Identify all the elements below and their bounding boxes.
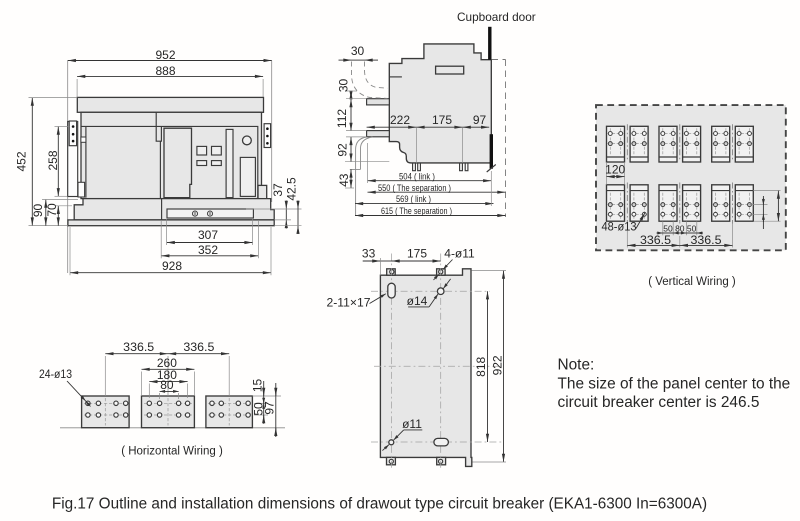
svg-text:307: 307 xyxy=(198,228,218,242)
svg-text:15: 15 xyxy=(251,379,265,393)
svg-text:80: 80 xyxy=(675,224,685,234)
svg-text:ø11: ø11 xyxy=(402,417,422,431)
svg-text:( Vertical Wiring ): ( Vertical Wiring ) xyxy=(648,276,736,288)
svg-text:452: 452 xyxy=(15,151,29,171)
svg-text:92: 92 xyxy=(336,143,350,157)
svg-text:42.5: 42.5 xyxy=(285,177,299,201)
svg-text:97: 97 xyxy=(473,113,487,127)
svg-text:352: 352 xyxy=(198,243,218,257)
svg-text:Note:: Note: xyxy=(558,357,595,374)
svg-text:97: 97 xyxy=(263,401,277,415)
svg-text:ø14: ø14 xyxy=(407,294,428,308)
svg-text:336.5: 336.5 xyxy=(640,233,671,247)
svg-text:504 ( link ): 504 ( link ) xyxy=(399,171,435,182)
svg-text:48-ø13: 48-ø13 xyxy=(602,220,637,234)
svg-text:33: 33 xyxy=(362,247,376,261)
svg-text:2-11×17: 2-11×17 xyxy=(327,296,371,310)
svg-text:90: 90 xyxy=(31,204,45,218)
svg-text:circuit breaker center is 246.: circuit breaker center is 246.5 xyxy=(558,394,760,411)
svg-text:80: 80 xyxy=(160,378,174,392)
svg-text:928: 928 xyxy=(162,259,182,273)
svg-text:112: 112 xyxy=(335,109,349,128)
svg-text:818: 818 xyxy=(474,356,488,376)
svg-text:37: 37 xyxy=(271,183,285,197)
svg-text:70: 70 xyxy=(45,203,59,217)
svg-text:550 ( The separation ): 550 ( The separation ) xyxy=(378,183,451,194)
svg-text:120: 120 xyxy=(605,162,625,176)
svg-text:Cupboard door: Cupboard door xyxy=(457,10,536,24)
svg-text:30: 30 xyxy=(351,44,365,58)
svg-text:615 ( The separation ): 615 ( The separation ) xyxy=(381,206,452,217)
svg-text:569 ( link ): 569 ( link ) xyxy=(396,194,431,205)
svg-text:336.5: 336.5 xyxy=(691,233,722,247)
svg-text:4-ø11: 4-ø11 xyxy=(444,247,475,261)
svg-text:( Horizontal Wiring ): ( Horizontal Wiring ) xyxy=(121,446,223,458)
svg-text:888: 888 xyxy=(155,64,175,78)
svg-text:922: 922 xyxy=(491,355,505,375)
svg-text:952: 952 xyxy=(155,48,175,62)
svg-text:222: 222 xyxy=(390,113,410,127)
svg-text:336.5: 336.5 xyxy=(123,340,154,354)
svg-text:175: 175 xyxy=(407,247,427,261)
svg-text:30: 30 xyxy=(337,79,351,93)
svg-text:175: 175 xyxy=(432,113,452,127)
svg-text:Fig.17 Outline and installatio: Fig.17 Outline and installation dimensio… xyxy=(52,496,707,513)
svg-text:43: 43 xyxy=(337,173,351,187)
svg-text:The size of the panel center t: The size of the panel center to the xyxy=(558,375,791,392)
svg-text:258: 258 xyxy=(46,150,60,170)
svg-text:24-ø13: 24-ø13 xyxy=(39,367,72,381)
svg-text:336.5: 336.5 xyxy=(183,340,214,354)
